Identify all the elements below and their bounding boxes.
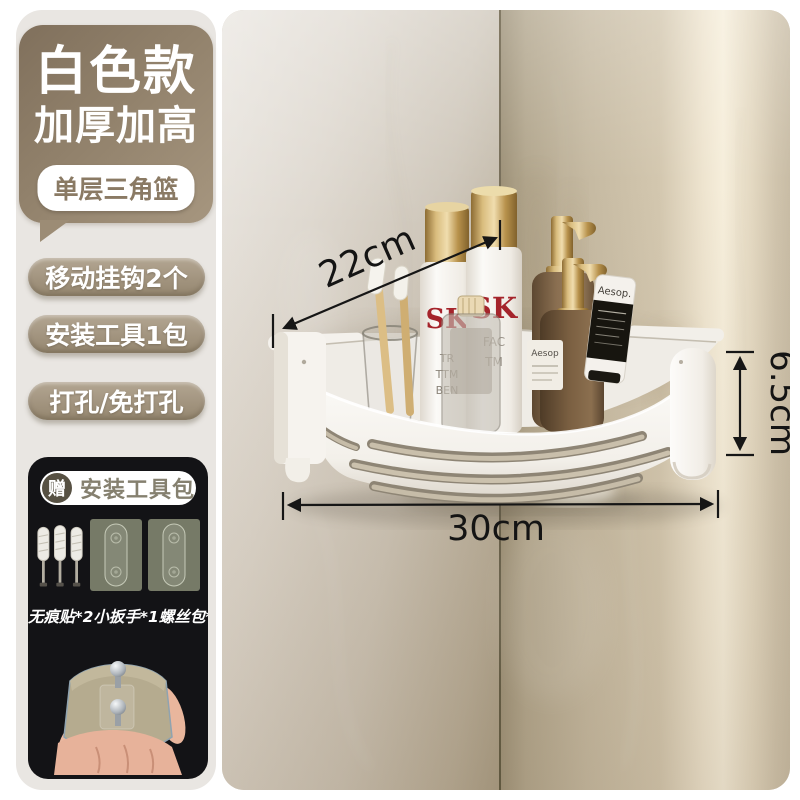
info-column: 白色款 加厚加高 单层三角篮 移动挂钩2个 安装工具1包 打孔/免打孔 赠 安装… [16,10,216,790]
feature-pill-drilling: 打孔/免打孔 [28,382,205,420]
left-bracket [274,332,326,482]
adhesive-sticker-thumb [90,519,142,591]
bubble-tail [40,220,70,242]
product-card: SK TR TTM BEN SK FAC TM [0,0,800,800]
wall-anchors-thumb [36,519,84,593]
feature-pill-hooks: 移动挂钩2个 [28,258,205,296]
left-wall-hook [285,458,310,482]
right-wall-hook [670,348,716,480]
bathroom-photo: SK TR TTM BEN SK FAC TM [222,10,790,790]
height-label: 6.5cm [762,350,790,456]
gift-header: 赠 安装工具包 [40,471,196,505]
gift-badge-icon: 赠 [42,473,72,503]
variant-badge: 单层三角篮 [37,165,194,211]
adhesive-sticker-thumb [148,519,200,591]
tools-note: 无痕贴*2小扳手*1螺丝包*1 [28,605,208,627]
gift-title: 安装工具包 [80,472,195,504]
gift-contents-thumbs [36,519,200,595]
title-line-1: 白色款 [19,45,213,100]
feature-pill-tools: 安装工具1包 [28,315,205,353]
title-line-2: 加厚加高 [19,104,213,148]
title-bubble: 白色款 加厚加高 单层三角篮 [19,25,213,223]
corner-shelf-scene: SK TR TTM BEN SK FAC TM [222,10,790,790]
aesop-label: Aesop [531,349,559,359]
gift-panel: 赠 安装工具包 [28,457,208,779]
clear-pump-bottle [442,296,500,432]
hand-holding-plate-photo [40,629,196,775]
height-arrow [726,352,754,455]
width-label: 30cm [447,509,545,549]
